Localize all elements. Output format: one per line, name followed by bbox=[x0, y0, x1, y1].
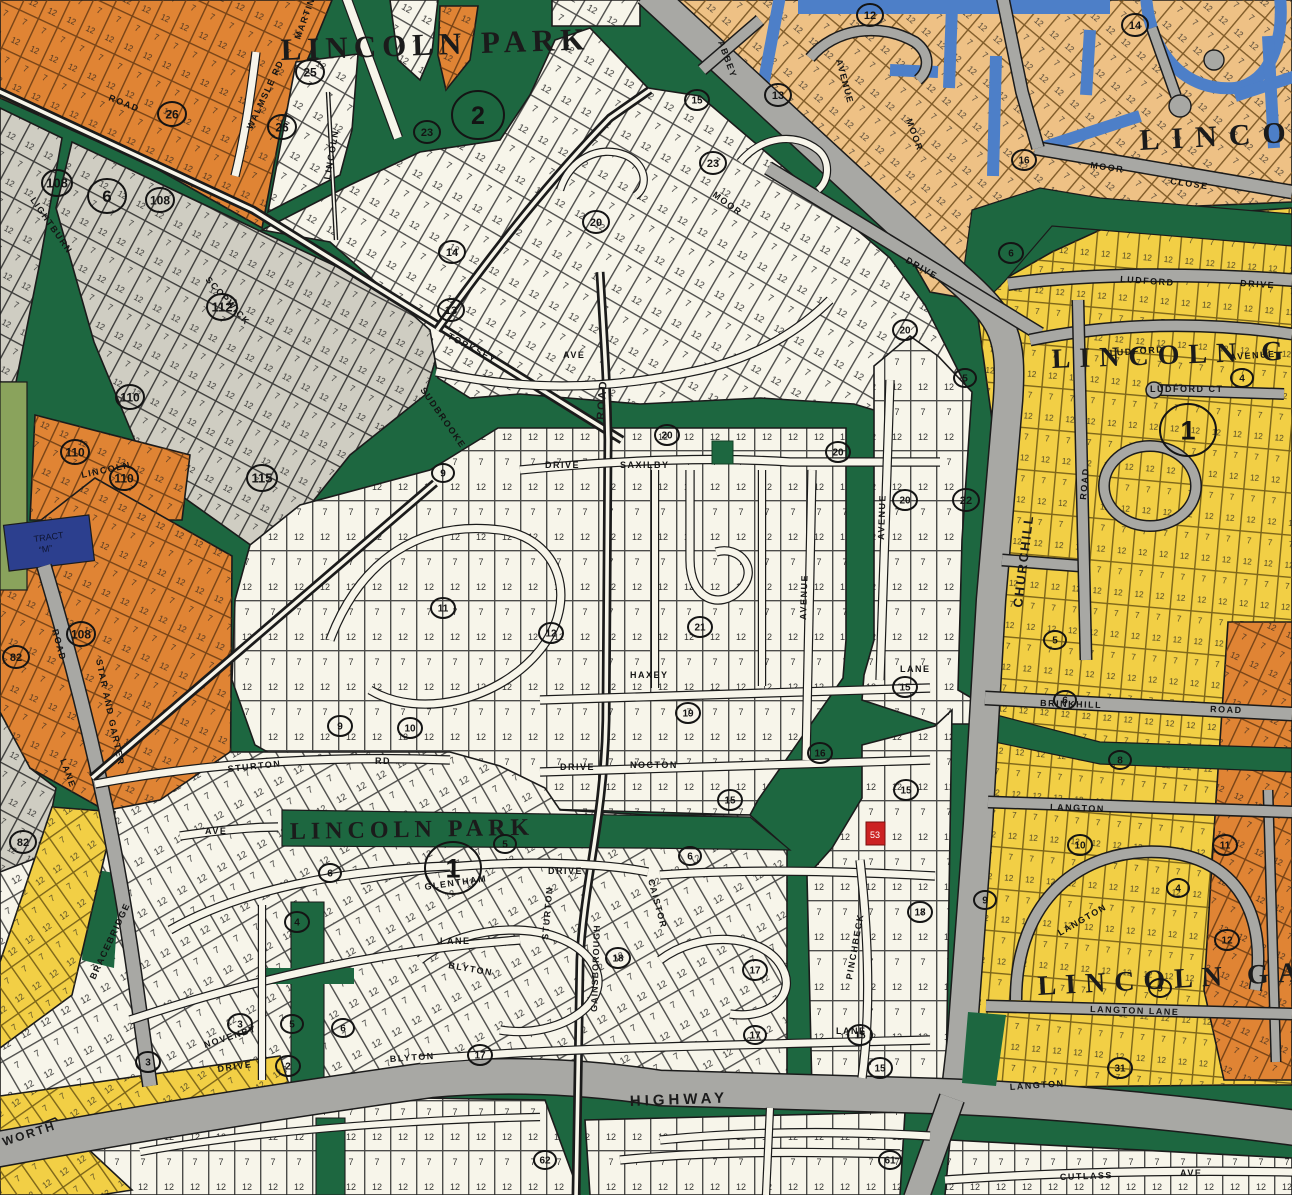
svg-text:AVE: AVE bbox=[1180, 1168, 1202, 1178]
svg-text:AVENUE: AVENUE bbox=[876, 494, 888, 540]
svg-text:108: 108 bbox=[46, 176, 68, 191]
svg-text:26: 26 bbox=[165, 107, 179, 121]
svg-text:“M”: “M” bbox=[38, 543, 53, 555]
svg-text:4: 4 bbox=[1175, 884, 1181, 895]
svg-text:23: 23 bbox=[421, 127, 433, 139]
svg-text:82: 82 bbox=[17, 837, 29, 849]
svg-text:4: 4 bbox=[294, 918, 300, 929]
svg-text:LUDFORD CT: LUDFORD CT bbox=[1150, 384, 1224, 394]
svg-text:16: 16 bbox=[814, 749, 826, 760]
svg-text:1: 1 bbox=[1180, 416, 1195, 446]
svg-text:18: 18 bbox=[914, 908, 926, 919]
svg-text:9: 9 bbox=[440, 469, 446, 480]
svg-text:6: 6 bbox=[102, 187, 111, 206]
svg-text:LANGTON: LANGTON bbox=[1050, 802, 1105, 814]
svg-text:2: 2 bbox=[471, 102, 485, 130]
svg-text:20: 20 bbox=[832, 448, 844, 459]
svg-text:17: 17 bbox=[749, 1031, 761, 1042]
svg-text:RD: RD bbox=[375, 756, 391, 766]
svg-text:5: 5 bbox=[289, 1020, 295, 1031]
svg-text:5: 5 bbox=[502, 840, 508, 851]
svg-text:6: 6 bbox=[1008, 249, 1014, 260]
svg-text:20: 20 bbox=[590, 217, 602, 229]
svg-text:LINCOLN PARK: LINCOLN PARK bbox=[290, 815, 535, 845]
svg-text:6: 6 bbox=[327, 869, 333, 880]
svg-text:31: 31 bbox=[1114, 1064, 1126, 1075]
svg-text:110: 110 bbox=[65, 445, 85, 459]
svg-text:5: 5 bbox=[1052, 636, 1058, 647]
svg-text:SAXILBY: SAXILBY bbox=[620, 460, 670, 470]
svg-text:23: 23 bbox=[707, 158, 719, 170]
svg-text:6: 6 bbox=[340, 1024, 346, 1035]
svg-text:15: 15 bbox=[724, 796, 736, 807]
svg-text:112: 112 bbox=[212, 300, 233, 315]
svg-text:22: 22 bbox=[960, 495, 972, 507]
svg-text:12: 12 bbox=[545, 629, 557, 640]
svg-text:9: 9 bbox=[982, 896, 988, 907]
svg-text:21: 21 bbox=[694, 623, 706, 634]
svg-text:6: 6 bbox=[1062, 696, 1068, 707]
svg-text:82: 82 bbox=[10, 652, 22, 664]
svg-text:17: 17 bbox=[749, 966, 761, 977]
svg-text:CUTLASS: CUTLASS bbox=[1060, 1170, 1113, 1182]
svg-text:17: 17 bbox=[474, 1051, 486, 1062]
svg-text:61: 61 bbox=[884, 1156, 896, 1167]
svg-text:20: 20 bbox=[661, 431, 673, 442]
svg-text:108: 108 bbox=[150, 193, 170, 207]
svg-text:LANE: LANE bbox=[440, 936, 471, 946]
svg-text:15: 15 bbox=[854, 1031, 866, 1042]
svg-text:15: 15 bbox=[899, 683, 911, 694]
svg-text:13: 13 bbox=[772, 90, 784, 102]
svg-text:4: 4 bbox=[1239, 374, 1245, 385]
svg-text:15: 15 bbox=[691, 96, 703, 107]
svg-text:DRIVE: DRIVE bbox=[545, 460, 580, 470]
svg-text:AVENUE: AVENUE bbox=[798, 574, 810, 620]
svg-text:25: 25 bbox=[303, 65, 317, 79]
svg-text:15: 15 bbox=[874, 1064, 886, 1075]
svg-text:14: 14 bbox=[446, 247, 459, 259]
svg-text:13: 13 bbox=[445, 305, 457, 317]
svg-text:LANE: LANE bbox=[900, 664, 931, 674]
svg-text:62: 62 bbox=[539, 1156, 551, 1167]
svg-text:26: 26 bbox=[275, 120, 289, 134]
svg-text:18: 18 bbox=[612, 954, 624, 965]
svg-text:8: 8 bbox=[1117, 756, 1123, 767]
svg-text:2: 2 bbox=[285, 1062, 291, 1073]
svg-text:19: 19 bbox=[682, 709, 694, 720]
svg-text:15: 15 bbox=[900, 786, 912, 797]
svg-text:AVE: AVE bbox=[205, 826, 227, 836]
svg-text:11: 11 bbox=[1220, 841, 1231, 852]
svg-text:11: 11 bbox=[438, 604, 449, 615]
svg-text:108: 108 bbox=[71, 627, 91, 641]
svg-text:9: 9 bbox=[1157, 984, 1163, 995]
svg-text:9: 9 bbox=[337, 722, 343, 733]
svg-text:AVE: AVE bbox=[563, 350, 585, 360]
svg-text:3: 3 bbox=[237, 1020, 243, 1031]
svg-text:115: 115 bbox=[252, 471, 273, 486]
svg-text:10: 10 bbox=[1074, 841, 1086, 852]
svg-text:NOCTON: NOCTON bbox=[630, 760, 678, 770]
svg-text:HAXEY: HAXEY bbox=[630, 670, 669, 680]
svg-text:14: 14 bbox=[1129, 20, 1142, 32]
svg-text:110: 110 bbox=[114, 471, 134, 485]
svg-text:16: 16 bbox=[1018, 156, 1030, 167]
svg-text:1: 1 bbox=[445, 854, 460, 884]
svg-text:20: 20 bbox=[899, 496, 911, 507]
svg-text:5: 5 bbox=[962, 374, 968, 385]
svg-text:6: 6 bbox=[687, 852, 693, 863]
svg-text:110: 110 bbox=[120, 390, 140, 404]
svg-text:12: 12 bbox=[1221, 936, 1233, 947]
svg-text:DRIVE: DRIVE bbox=[560, 762, 595, 772]
svg-text:ROAD: ROAD bbox=[1210, 704, 1243, 715]
svg-text:3: 3 bbox=[145, 1058, 151, 1069]
svg-text:10: 10 bbox=[404, 724, 416, 735]
svg-text:20: 20 bbox=[899, 326, 911, 337]
svg-text:HIGHWAY: HIGHWAY bbox=[630, 1090, 729, 1110]
svg-text:DRIVE: DRIVE bbox=[548, 866, 583, 876]
svg-text:53: 53 bbox=[870, 830, 880, 840]
svg-text:12: 12 bbox=[864, 10, 876, 22]
